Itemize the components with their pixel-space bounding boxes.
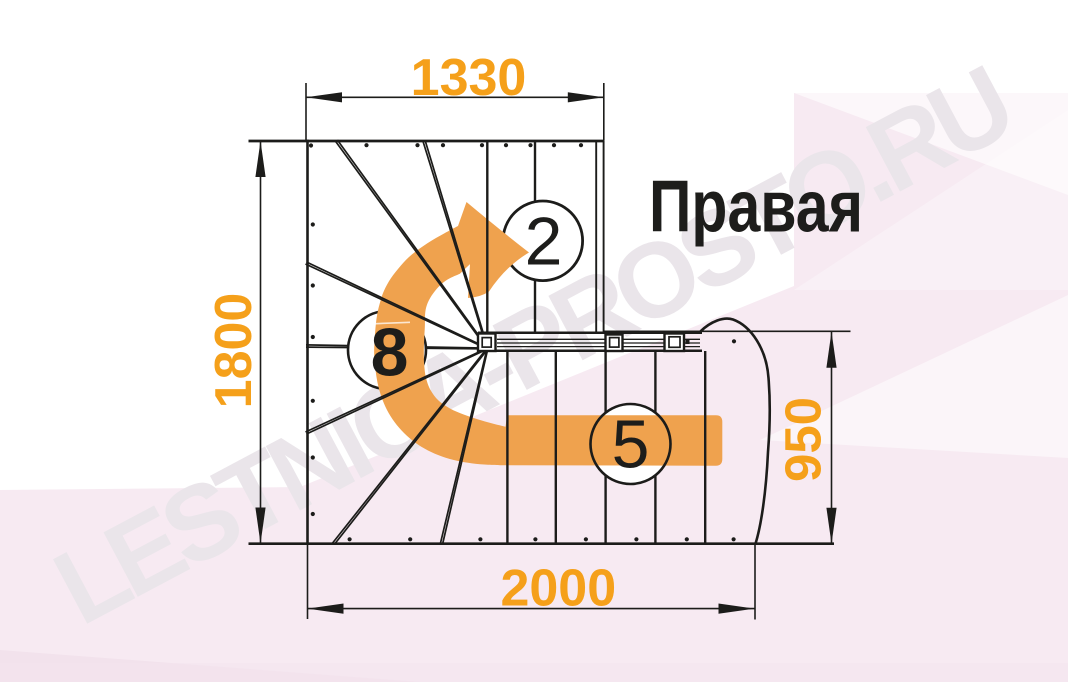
svg-text:1330: 1330	[411, 49, 527, 107]
svg-text:Правая: Правая	[649, 167, 863, 248]
svg-text:2000: 2000	[500, 559, 616, 617]
svg-text:1800: 1800	[205, 293, 263, 409]
svg-text:950: 950	[775, 397, 832, 482]
svg-text:5: 5	[612, 407, 650, 483]
svg-text:8: 8	[371, 315, 409, 391]
svg-text:2: 2	[525, 204, 563, 280]
